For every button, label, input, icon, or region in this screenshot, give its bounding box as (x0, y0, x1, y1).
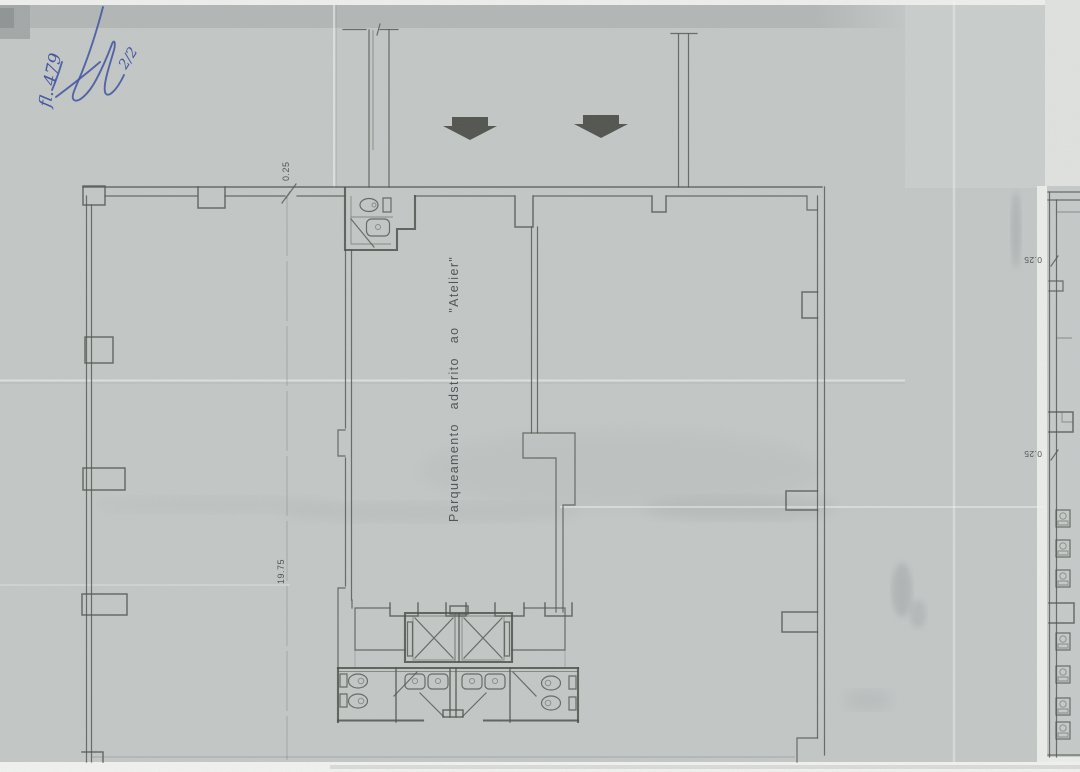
floor-plan-drawing: Parqueamento adstrito ao "Atelier" 0.25 … (0, 0, 1080, 772)
scanned-floor-plan-page: Parqueamento adstrito ao "Atelier" 0.25 … (0, 0, 1080, 772)
scan-grain-overlay (0, 0, 1080, 772)
